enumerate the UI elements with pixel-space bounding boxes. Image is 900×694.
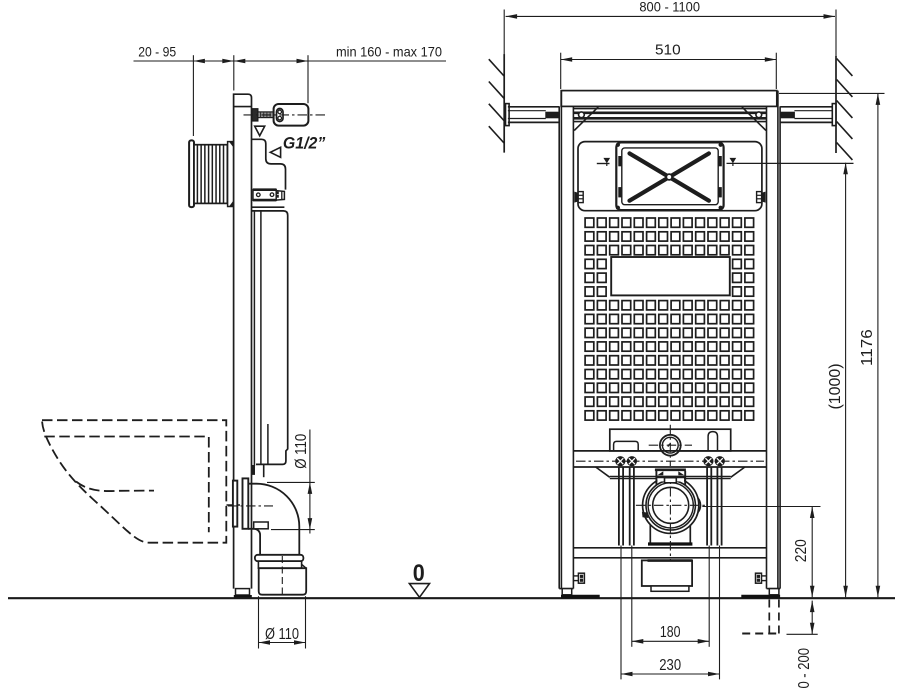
svg-text:20 - 95: 20 - 95 [138,44,176,60]
svg-text:220: 220 [793,539,810,562]
svg-text:min 160 - max 170: min 160 - max 170 [336,44,442,60]
svg-text:G1/2”: G1/2” [283,135,326,153]
svg-text:0 - 200: 0 - 200 [796,648,813,689]
svg-text:Ø 110: Ø 110 [293,433,310,468]
svg-text:(1000): (1000) [827,364,844,410]
svg-text:180: 180 [660,624,681,641]
svg-text:230: 230 [659,657,681,674]
svg-text:800 - 1100: 800 - 1100 [639,0,700,15]
svg-text:1176: 1176 [859,329,876,366]
svg-text:510: 510 [655,42,681,59]
svg-text:Ø 110: Ø 110 [265,626,299,643]
